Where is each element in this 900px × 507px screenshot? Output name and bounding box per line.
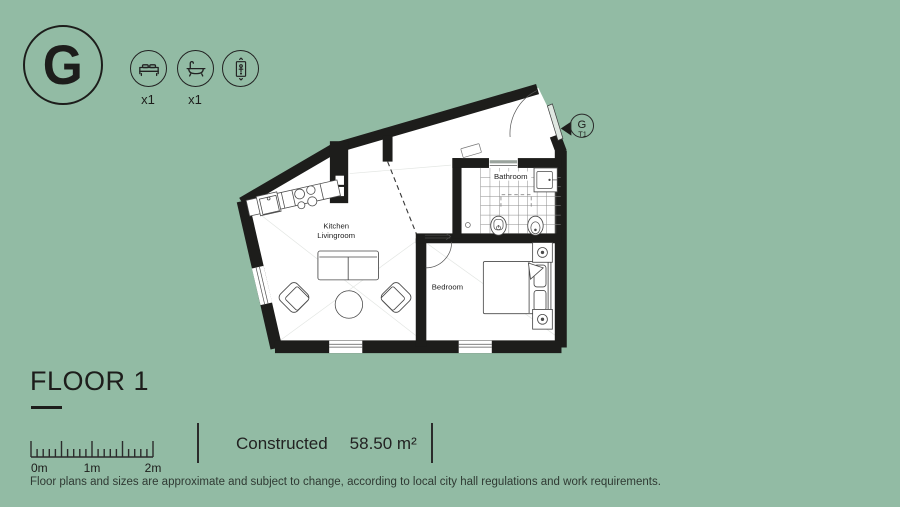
constructed-value: 58.50 m² xyxy=(350,434,417,453)
floor-title: FLOOR 1 xyxy=(30,366,149,397)
kitchen-label: Kitchen xyxy=(323,221,349,230)
bathrooms-amenity xyxy=(177,50,214,87)
toilet xyxy=(491,216,506,235)
scale-label-0m: 0m xyxy=(31,461,48,475)
footer-divider-right xyxy=(431,423,433,463)
entrance-badge-unit: T1 xyxy=(578,129,587,138)
coffee-table xyxy=(335,291,362,318)
disclaimer-text: Floor plans and sizes are approximate an… xyxy=(30,476,661,488)
building-block-badge: G xyxy=(23,25,103,105)
bath-icon xyxy=(183,56,209,82)
bathrooms-count: x1 xyxy=(175,92,215,107)
nightstand-bottom xyxy=(533,309,553,329)
entrance-unit-badge: G T1 xyxy=(570,114,593,138)
block-letter: G xyxy=(43,37,83,93)
bed-icon xyxy=(136,56,162,82)
floor-title-underline xyxy=(31,406,62,409)
floorplan-card: G xyxy=(0,0,900,507)
constructed-area: Constructed58.50 m² xyxy=(236,434,417,454)
kitchen-faucet xyxy=(267,197,270,200)
nightstand-top xyxy=(533,243,553,263)
bedrooms-count: x1 xyxy=(128,92,168,107)
sofa xyxy=(318,251,379,280)
scale-label-2m: 2m xyxy=(145,461,162,475)
entrance-arrow-icon xyxy=(561,121,572,135)
hall-stub-wall xyxy=(383,136,393,162)
bed-pillow xyxy=(534,290,546,310)
living-bottom-window xyxy=(329,341,362,353)
bathroom-label: Bathroom xyxy=(494,172,528,181)
bathroom-sink xyxy=(534,168,557,192)
scale-ruler-ticks xyxy=(31,441,153,457)
footer-divider-left xyxy=(197,423,199,463)
floor-plan: G T1 xyxy=(225,10,760,435)
bedroom-bottom-window xyxy=(459,341,492,353)
bedrooms-amenity xyxy=(130,50,167,87)
constructed-label: Constructed xyxy=(236,434,328,453)
scale-label-1m: 1m xyxy=(84,461,101,475)
livingroom-label: Livingroom xyxy=(317,231,355,240)
scale-ruler: 0m 1m 2m xyxy=(28,431,178,476)
bidet xyxy=(528,216,543,235)
bedroom-label: Bedroom xyxy=(432,283,463,292)
bathroom-sliding-door xyxy=(489,157,518,168)
bed xyxy=(483,262,551,314)
